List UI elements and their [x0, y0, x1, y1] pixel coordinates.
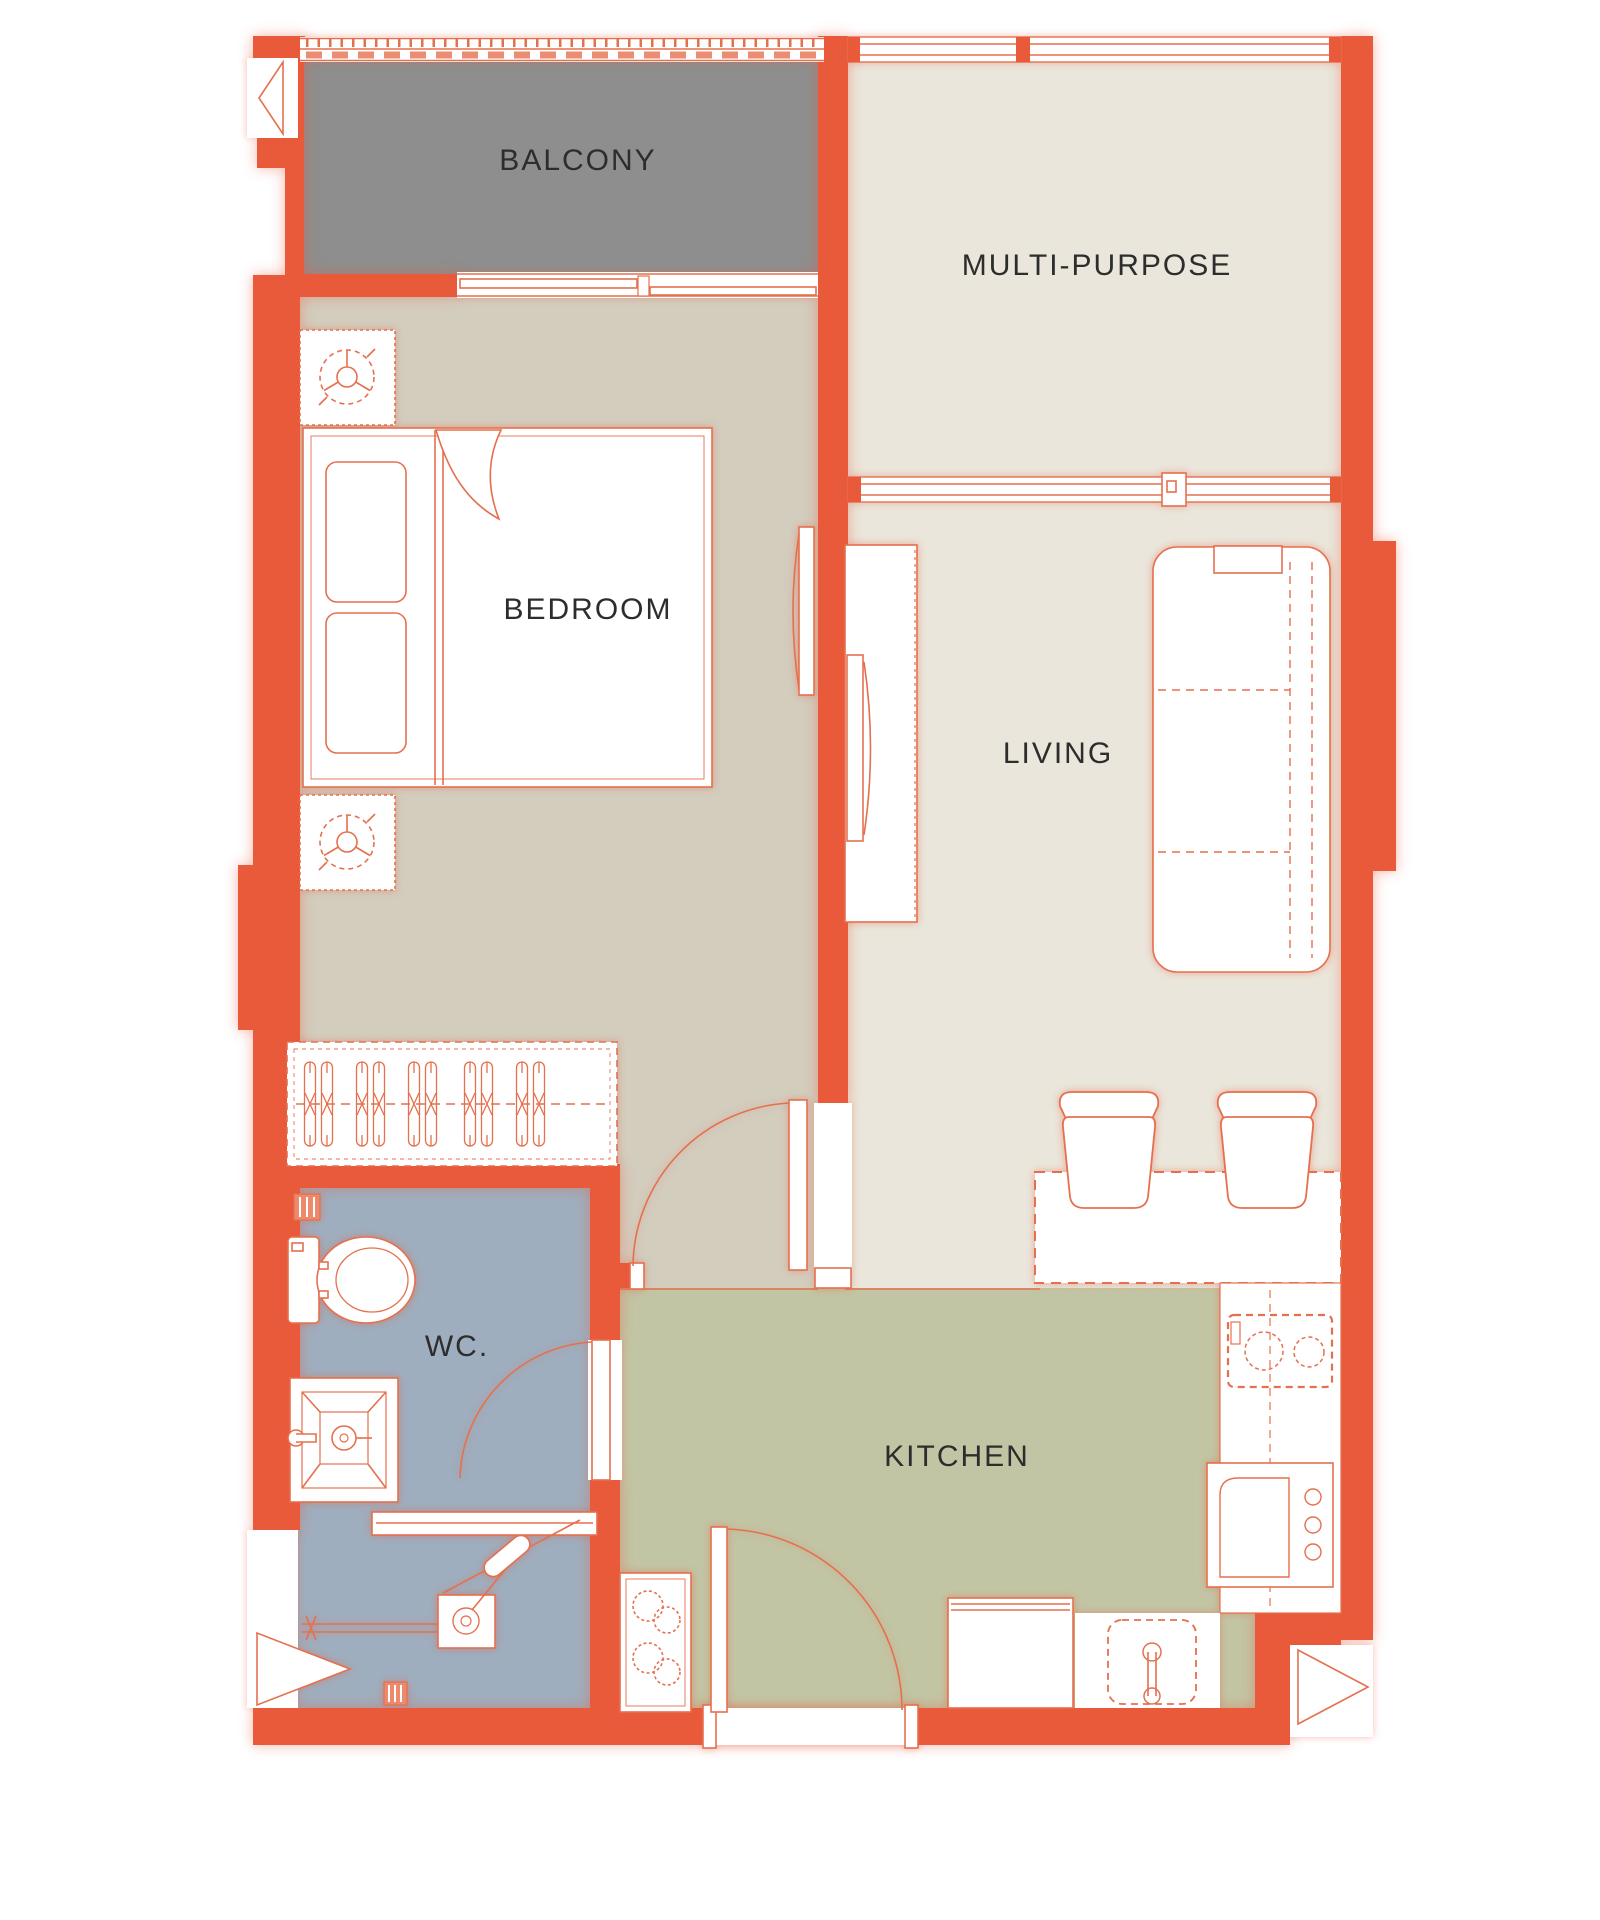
pillow — [326, 462, 406, 602]
sofa — [1153, 546, 1330, 972]
room-label-balcony: BALCONY — [499, 144, 656, 178]
room-label-kitchen: KITCHEN — [884, 1440, 1030, 1474]
toilet — [288, 1237, 415, 1323]
pillow — [326, 613, 406, 753]
wardrobe — [287, 1042, 617, 1166]
floor-plan: BALCONY MULTI-PURPOSE BEDROOM LIVING WC.… — [0, 0, 1600, 1920]
washbasin — [288, 1378, 398, 1502]
door-leaf — [592, 1340, 610, 1480]
window-top — [848, 37, 1341, 62]
room-label-bedroom: BEDROOM — [503, 593, 672, 627]
door-leaf — [711, 1527, 727, 1712]
window-divider — [848, 473, 1341, 506]
stool-right — [1218, 1092, 1317, 1208]
sliding-door — [457, 272, 818, 298]
vent-grate-icon — [294, 1194, 320, 1220]
door-leaf — [789, 1100, 807, 1270]
window-marker-bottom-right-icon — [1290, 1645, 1373, 1737]
floor-drain-icon — [384, 1682, 407, 1705]
plan-drawing — [0, 0, 1600, 1920]
room-label-wc: WC. — [425, 1330, 489, 1364]
balcony-railing — [300, 37, 824, 62]
room-label-living: LIVING — [1003, 737, 1113, 771]
room-label-multi-purpose: MULTI-PURPOSE — [962, 249, 1232, 283]
stool-left — [1060, 1092, 1159, 1208]
nightstand-bottom — [300, 795, 395, 890]
kitchen-sink-icon — [1075, 1613, 1220, 1708]
nightstand-top — [300, 330, 395, 425]
tall-cabinet-icon — [620, 1573, 691, 1712]
window-marker-top-left-icon — [247, 58, 298, 138]
refrigerator-icon — [948, 1598, 1073, 1708]
microwave-oven-icon — [1207, 1463, 1333, 1587]
